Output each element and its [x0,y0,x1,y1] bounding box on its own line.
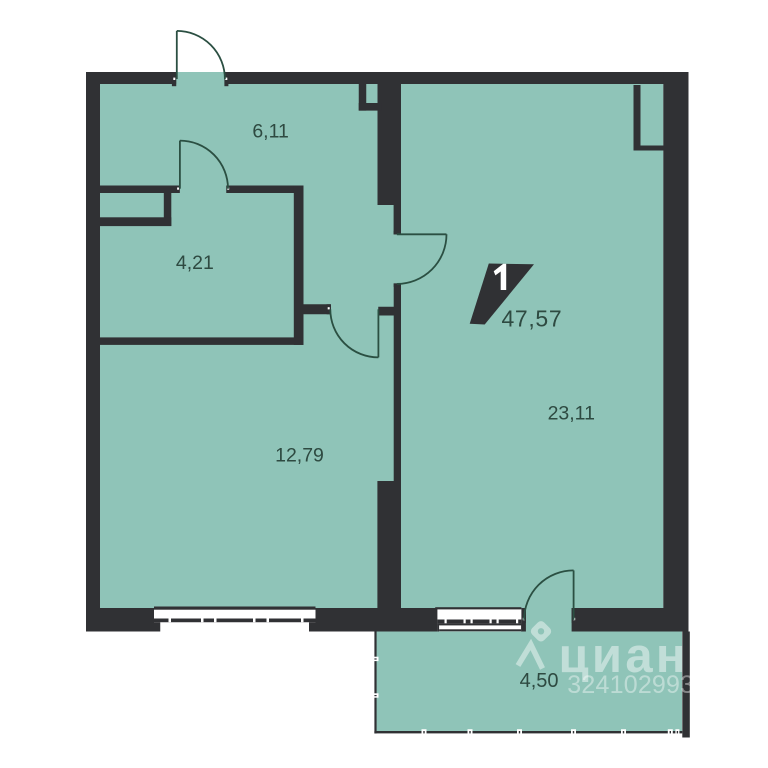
svg-text:47,57: 47,57 [501,305,562,331]
svg-text:12,79: 12,79 [275,445,324,467]
svg-text:4,21: 4,21 [176,252,214,274]
svg-text:324102993: 324102993 [567,671,694,699]
svg-text:6,11: 6,11 [252,121,289,143]
svg-text:23,11: 23,11 [548,402,595,424]
svg-text:4,50: 4,50 [520,670,559,692]
